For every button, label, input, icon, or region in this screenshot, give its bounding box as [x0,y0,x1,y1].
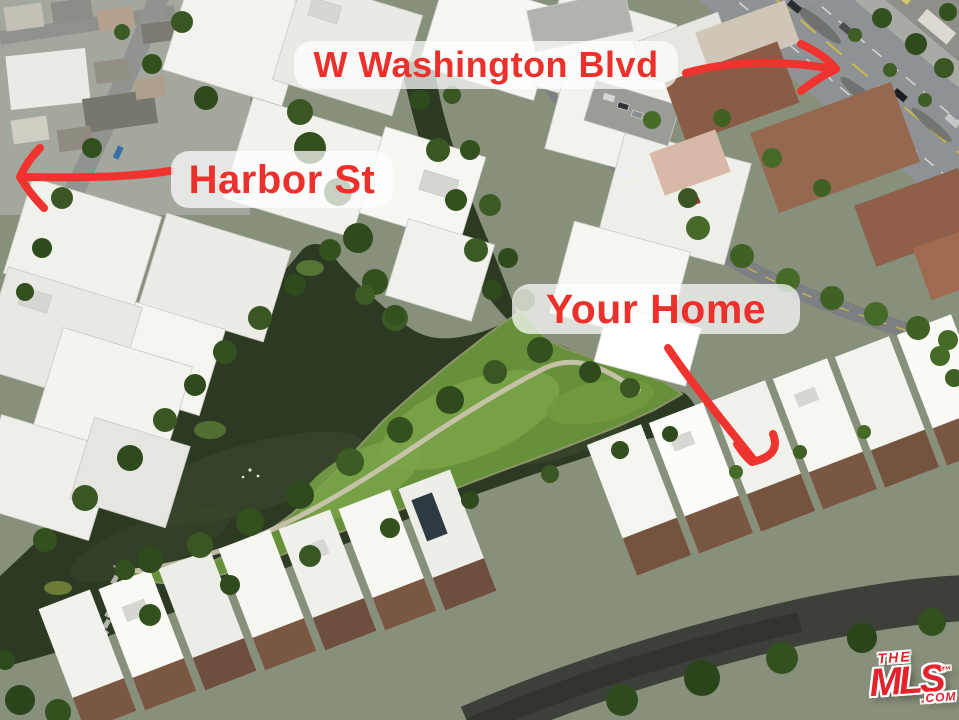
mls-logo-trademark: ™ [942,664,952,675]
mls-watermark-logo: THE MLS™ .COM [867,646,959,708]
street-label-washington-blvd: W Washington Blvd [294,41,678,89]
street-label-harbor-text: Harbor St [189,160,376,200]
street-label-harbor-st: Harbor St [171,151,393,208]
aerial-listing-photo: W Washington Blvd Harbor St Your Home TH… [0,0,959,720]
street-label-washington-text: W Washington Blvd [313,47,658,83]
your-home-label-text: Your Home [546,289,766,330]
your-home-label: Your Home [512,284,800,334]
aerial-scene [0,0,959,720]
